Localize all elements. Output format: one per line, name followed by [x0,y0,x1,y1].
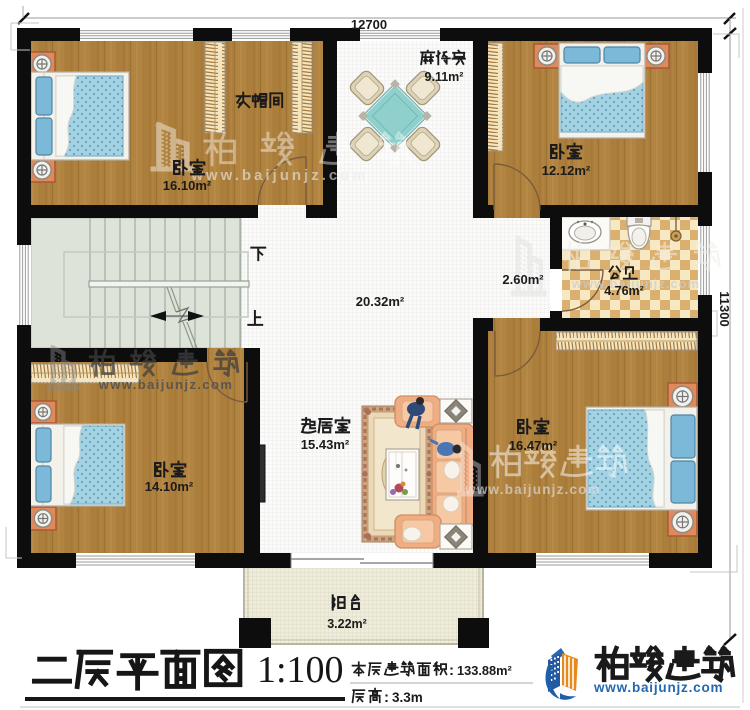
svg-text:14.10m²: 14.10m² [145,479,194,494]
svg-text:www.baijunjz.com: www.baijunjz.com [464,482,601,497]
svg-text:www.baijunjz.com: www.baijunjz.com [190,167,368,184]
svg-text::: : [449,662,454,679]
svg-text:16.10m²: 16.10m² [163,178,212,193]
svg-text::: : [384,689,389,706]
svg-text:9.11m²: 9.11m² [425,70,464,84]
svg-text:12.12m²: 12.12m² [542,163,591,178]
svg-text:20.32m²: 20.32m² [356,294,405,309]
svg-text:133.88m²: 133.88m² [457,663,512,678]
svg-text:2.60m²: 2.60m² [502,272,544,287]
svg-text:12700: 12700 [351,17,387,32]
svg-text:3.22m²: 3.22m² [327,617,367,631]
svg-text:www.baijunjz.com: www.baijunjz.com [593,680,723,695]
svg-text:3.3m: 3.3m [392,690,423,705]
svg-text:4.76m²: 4.76m² [604,284,644,298]
svg-text:1:100: 1:100 [257,649,344,691]
svg-text:15.43m²: 15.43m² [301,437,350,452]
svg-text:www.baijunjz.com: www.baijunjz.com [98,377,234,392]
svg-text:16.47m²: 16.47m² [509,438,558,453]
svg-text:11300: 11300 [717,291,732,326]
